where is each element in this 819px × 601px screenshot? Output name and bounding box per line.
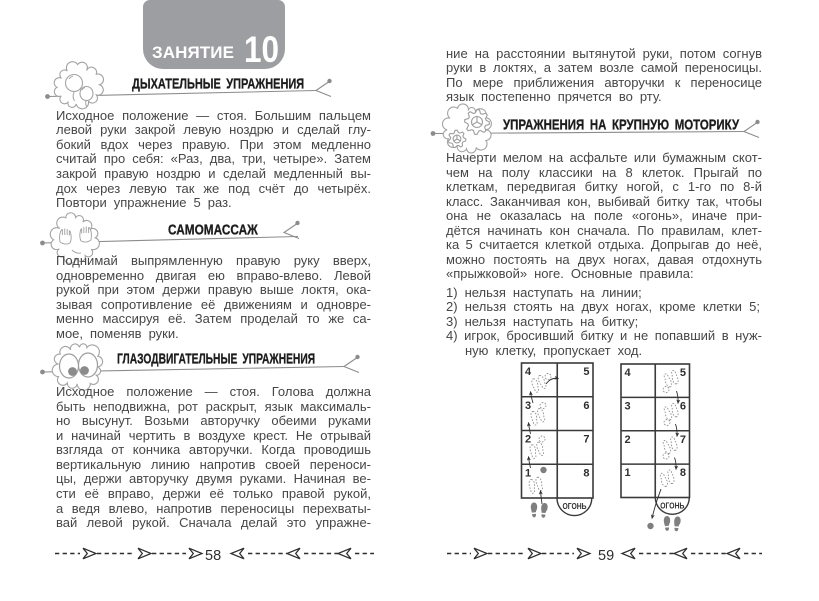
svg-text:6: 6 bbox=[680, 400, 686, 412]
svg-text:8: 8 bbox=[680, 467, 686, 479]
svg-text:7: 7 bbox=[583, 434, 589, 446]
svg-text:3: 3 bbox=[525, 400, 531, 412]
svg-text:5: 5 bbox=[583, 366, 589, 378]
svg-text:ОГОНЬ: ОГОНЬ bbox=[562, 501, 587, 511]
svg-text:2: 2 bbox=[525, 434, 531, 446]
svg-text:4: 4 bbox=[625, 367, 632, 379]
svg-text:2: 2 bbox=[625, 434, 631, 446]
svg-text:6: 6 bbox=[583, 400, 589, 412]
svg-text:1: 1 bbox=[525, 467, 531, 479]
svg-text:1: 1 bbox=[625, 467, 631, 479]
svg-text:8: 8 bbox=[583, 467, 589, 479]
svg-text:4: 4 bbox=[525, 366, 532, 378]
svg-text:5: 5 bbox=[680, 367, 686, 379]
svg-text:ОГОНЬ: ОГОНЬ bbox=[660, 501, 685, 511]
svg-text:7: 7 bbox=[680, 434, 686, 446]
svg-text:3: 3 bbox=[625, 400, 631, 412]
